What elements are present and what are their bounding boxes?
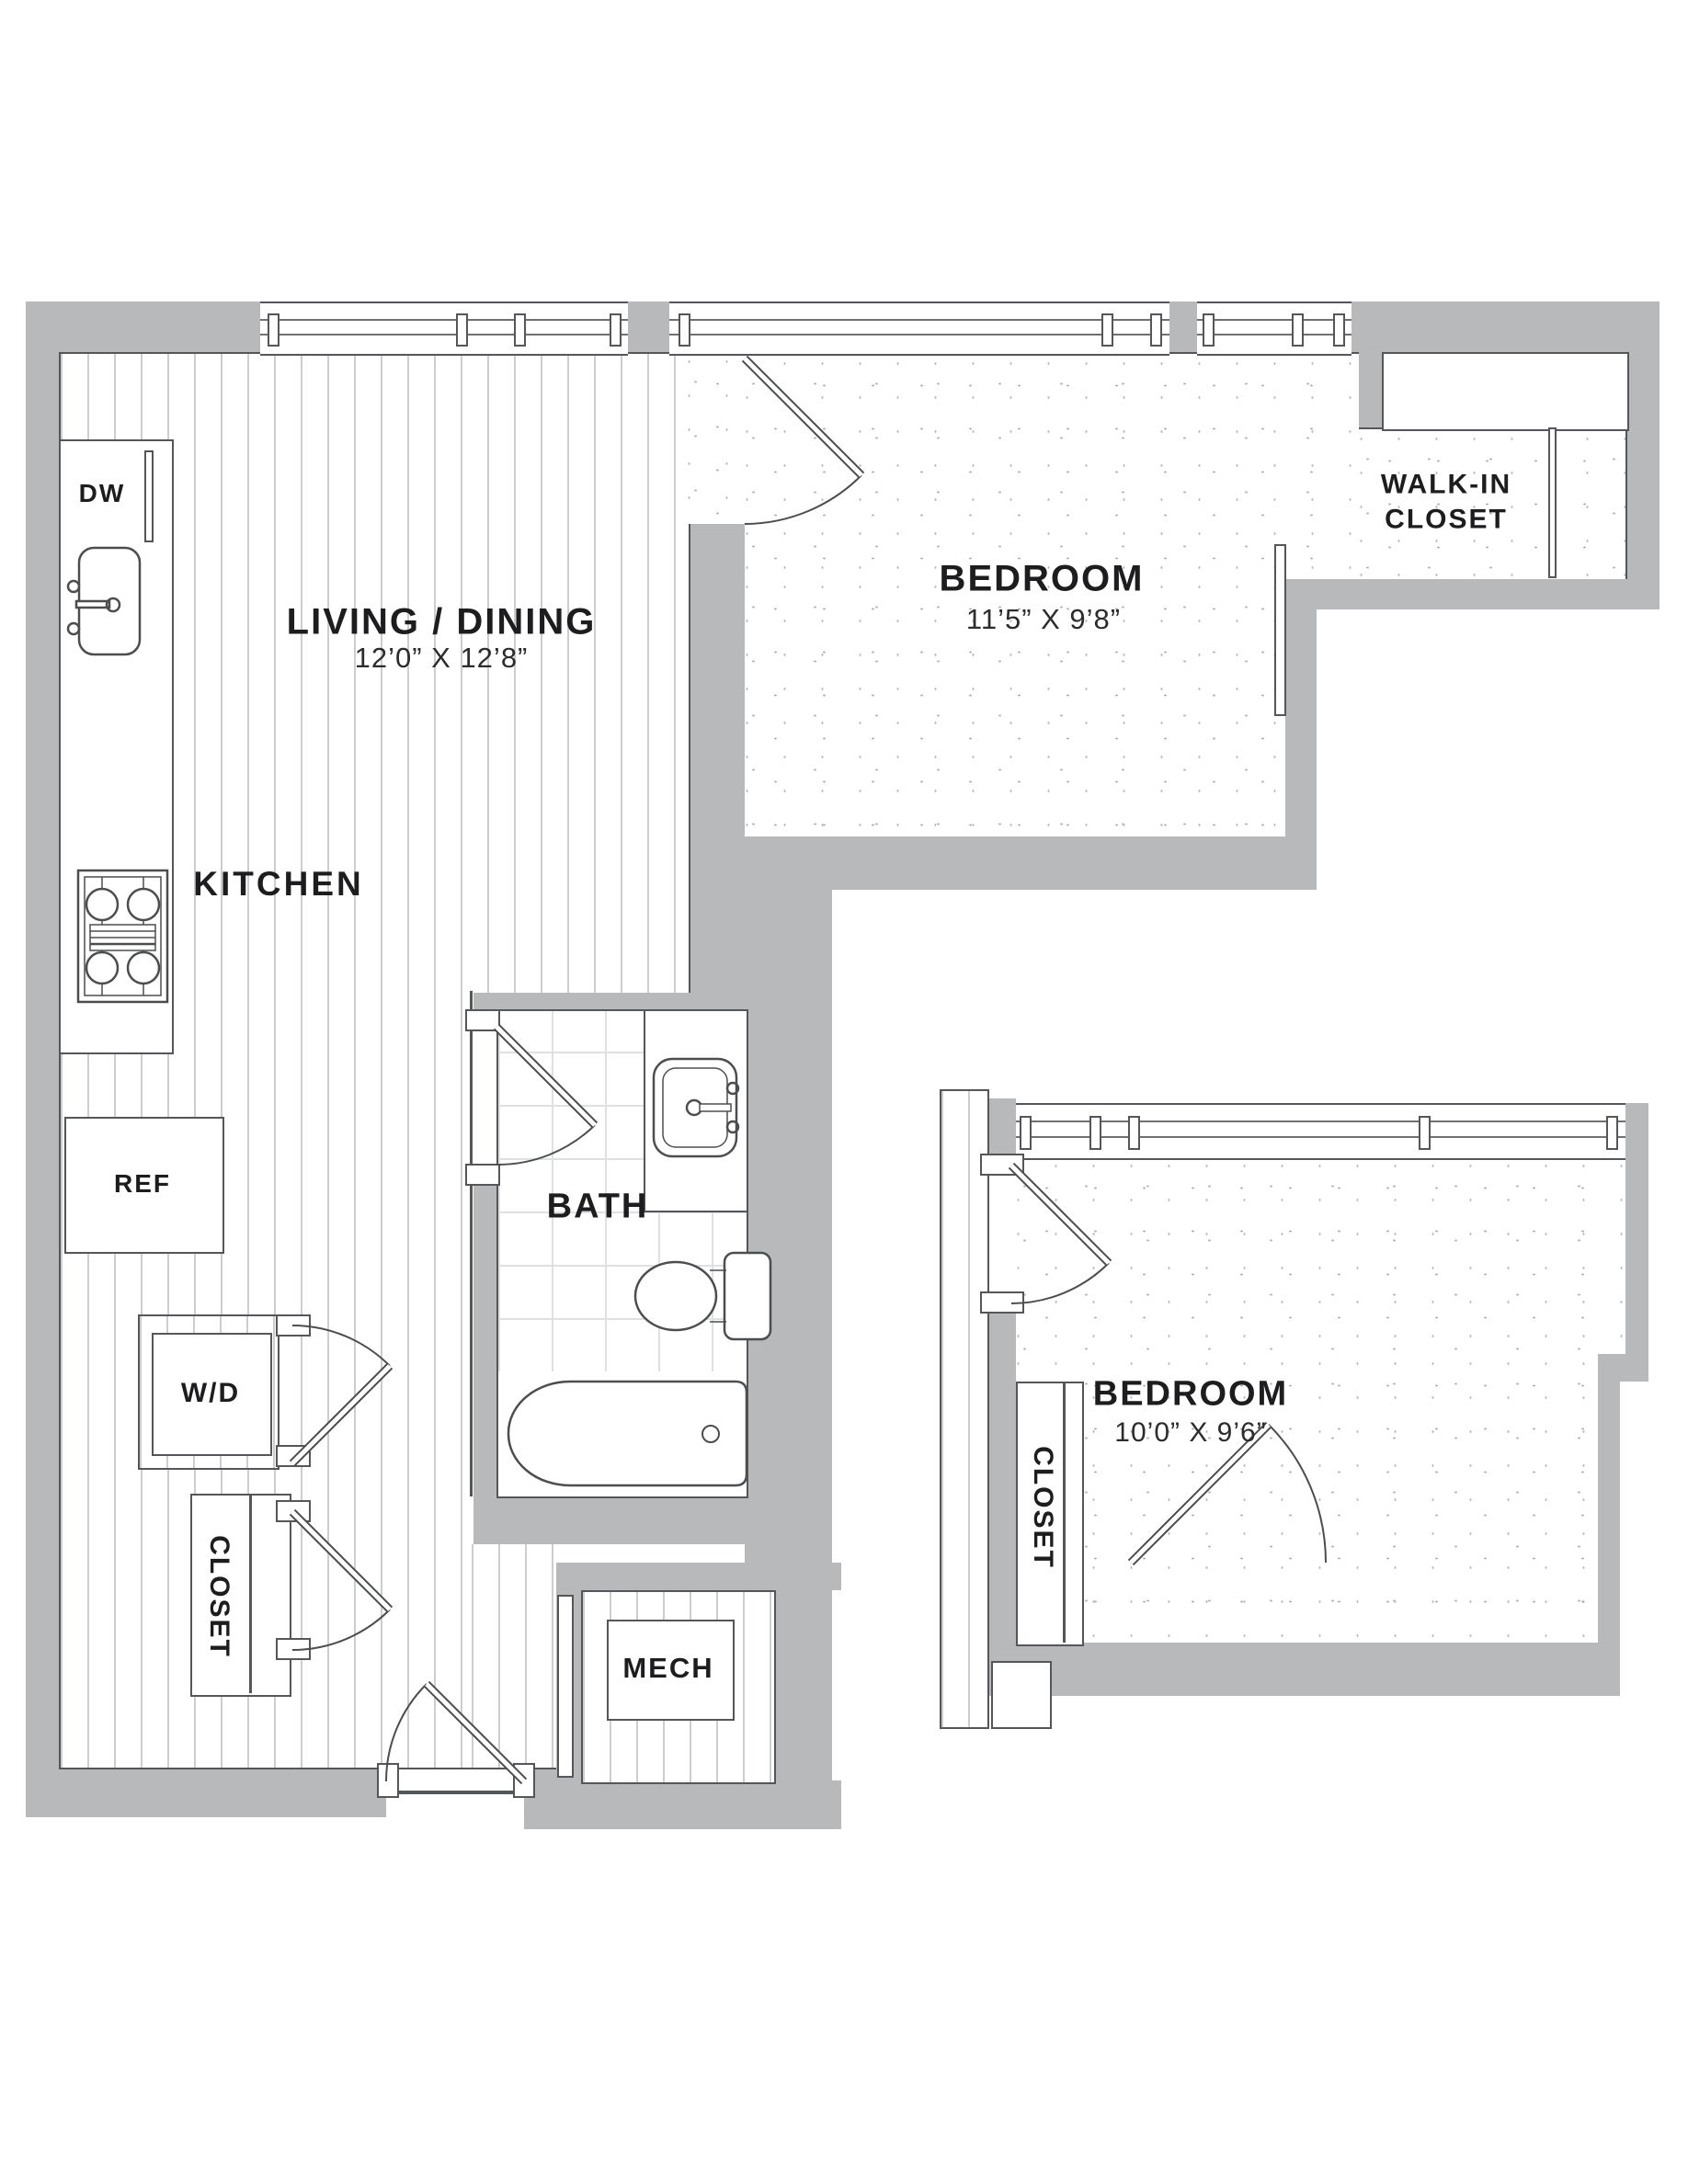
- hallway-floor-south: [472, 1544, 556, 1769]
- unit2-hall-strip: [940, 1089, 989, 1729]
- bath-tub-zone: [496, 1371, 748, 1498]
- bedroom2-floor: [1016, 1156, 1625, 1354]
- window-mullion-tick: [268, 313, 279, 347]
- window-mullion-tick: [679, 313, 690, 347]
- wall: [687, 836, 1285, 890]
- window-mullion-tick: [1203, 313, 1215, 347]
- wall: [1285, 609, 1317, 890]
- window-glass: [669, 319, 1169, 336]
- door-jamb: [980, 1154, 1024, 1176]
- room-label-bath: BATH: [547, 1188, 649, 1227]
- floor-plan: LIVING / DINING 12’0” X 12’8” KITCHEN BE…: [0, 0, 1688, 2184]
- wall-window-mullion: [1169, 301, 1197, 352]
- bedroom1-floor: [745, 352, 1359, 579]
- door-jamb: [980, 1291, 1024, 1314]
- wall-unit2: [986, 1098, 1016, 1158]
- door-jamb: [377, 1763, 399, 1798]
- door-jamb: [465, 1164, 500, 1186]
- wall-unit2: [986, 1643, 1620, 1696]
- bedroom1-window-2: [1197, 301, 1352, 356]
- window-glass: [260, 319, 628, 336]
- room-label-wd: W/D: [181, 1378, 240, 1409]
- window-mullion-tick: [610, 313, 622, 347]
- wall: [1285, 577, 1659, 609]
- living-window: [260, 301, 628, 356]
- mech-door-leaf: [557, 1595, 574, 1778]
- wall: [556, 1563, 841, 1590]
- bedroom1-window: [669, 301, 1169, 356]
- bath-vanity-counter: [644, 1009, 748, 1212]
- room-dims-bedroom1: 11’5” X 9’8”: [966, 603, 1121, 636]
- window-mullion-tick: [1020, 1116, 1032, 1151]
- window-mullion-tick: [1606, 1116, 1618, 1151]
- room-label-closet1: CLOSET: [203, 1535, 234, 1658]
- entry-threshold-line: [386, 1791, 524, 1794]
- door-jamb: [513, 1763, 535, 1798]
- wall: [1352, 301, 1659, 352]
- window-mullion-tick: [1101, 313, 1113, 347]
- closet1-shelf-line: [249, 1494, 252, 1693]
- room-label-bedroom2: BEDROOM: [1093, 1375, 1288, 1415]
- door-jamb: [276, 1445, 311, 1467]
- wall: [524, 1780, 841, 1829]
- room-label-walkin-closet: WALK-IN CLOSET: [1350, 468, 1543, 537]
- bedroom2-window: [1016, 1103, 1625, 1160]
- room-label-kitchen: KITCHEN: [193, 865, 363, 904]
- window-mullion-tick: [1150, 313, 1162, 347]
- window-mullion-tick: [1292, 313, 1304, 347]
- wall: [472, 1185, 496, 1496]
- room-label-mech: MECH: [622, 1652, 713, 1685]
- wall: [1625, 352, 1659, 609]
- wall-window-mullion: [628, 301, 669, 352]
- door-jamb: [276, 1314, 311, 1337]
- room-label-closet2: CLOSET: [1027, 1446, 1058, 1569]
- bath-west-edge-line: [470, 991, 473, 1496]
- bedroom1-wardrobe: [1274, 544, 1286, 716]
- window-mullion-tick: [456, 313, 468, 347]
- door-jamb: [465, 1009, 500, 1031]
- wall: [472, 1496, 749, 1544]
- appliance-label-dw: DW: [79, 479, 126, 508]
- walkin-closet-shelf: [1382, 352, 1629, 431]
- wall: [1359, 352, 1382, 429]
- room-label-living: LIVING / DINING: [287, 602, 597, 643]
- wall-unit2: [1625, 1103, 1648, 1360]
- unit2-wall-notch: [991, 1661, 1052, 1729]
- window-glass: [1016, 1120, 1625, 1138]
- walkin-closet-rod: [1548, 427, 1557, 578]
- wall: [264, 1768, 386, 1817]
- window-glass: [1197, 319, 1352, 336]
- door-jamb: [276, 1500, 311, 1522]
- kitchen-counter: [59, 439, 174, 1054]
- wall-unit2: [986, 1303, 1016, 1696]
- door-jamb: [276, 1638, 311, 1660]
- wall: [687, 524, 745, 991]
- window-mullion-tick: [1333, 313, 1345, 347]
- dishwasher-door-mark: [144, 450, 154, 542]
- wall: [26, 402, 59, 1817]
- window-mullion-tick: [1419, 1116, 1431, 1151]
- appliance-label-ref: REF: [114, 1169, 171, 1199]
- wall-unit2: [1598, 1354, 1648, 1382]
- room-label-bedroom1: BEDROOM: [940, 559, 1145, 600]
- room-dims-living: 12’0” X 12’8”: [355, 642, 529, 675]
- room-dims-bedroom2: 10’0” X 9’6”: [1114, 1417, 1266, 1449]
- window-mullion-tick: [1128, 1116, 1140, 1151]
- bedroom1-doorway-floor: [687, 352, 745, 524]
- wall: [472, 990, 745, 1009]
- window-mullion-tick: [514, 313, 526, 347]
- window-mullion-tick: [1089, 1116, 1101, 1151]
- closet2-shelf-line: [1063, 1382, 1066, 1643]
